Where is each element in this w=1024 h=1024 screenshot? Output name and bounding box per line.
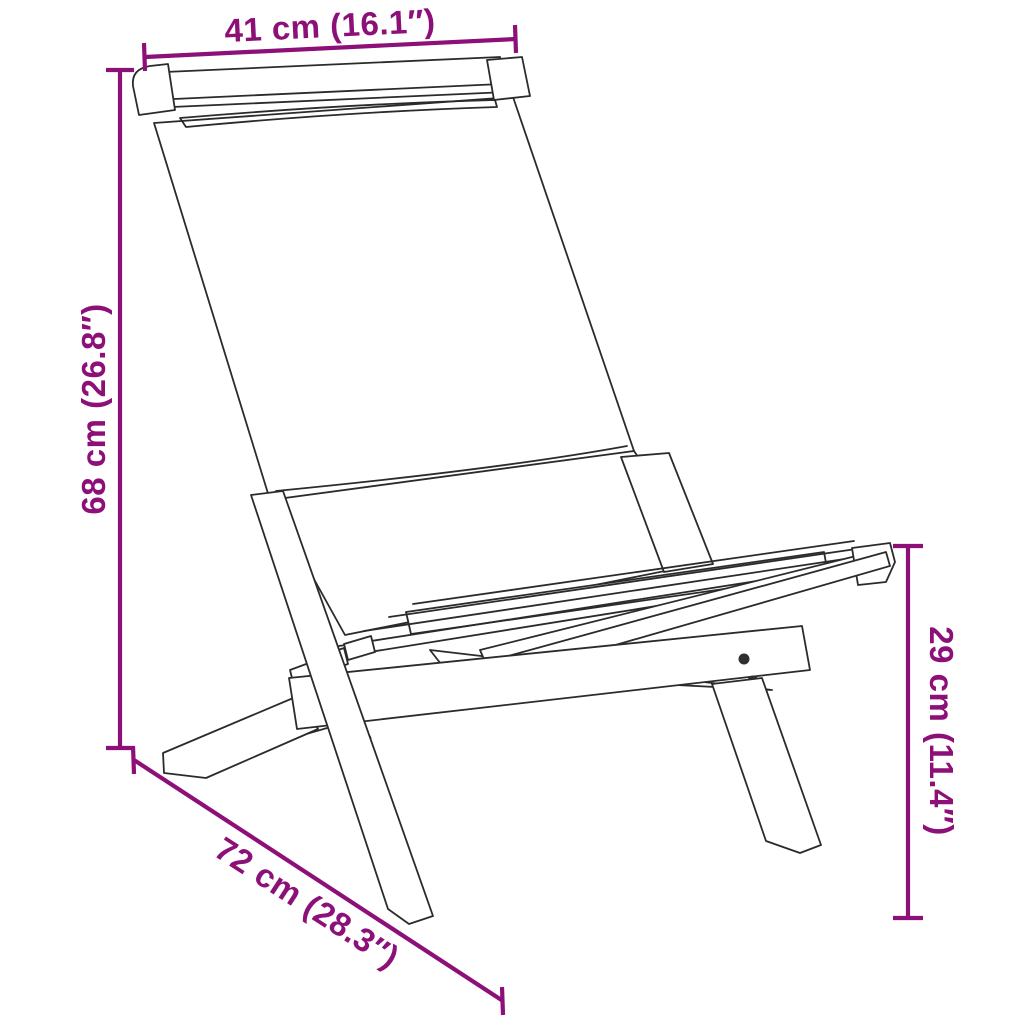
backrest-top-rail <box>165 57 507 107</box>
dimension-label-seat-height: 29 cm (11.4″) <box>922 626 960 835</box>
top-rail-left-cap <box>133 64 175 115</box>
dimension-label-height: 68 cm (26.8″) <box>75 303 113 514</box>
chair <box>133 57 895 924</box>
dimension-diagram: 41 cm (16.1″) 68 cm (26.8″) 29 cm (11.4″… <box>0 0 1024 1024</box>
backrest-fabric <box>154 97 634 500</box>
dimension-right-seat-height <box>893 546 923 918</box>
dimension-bottom-depth <box>133 746 503 1015</box>
top-rail-right-post <box>487 57 530 100</box>
chair-line-drawing <box>0 0 1024 1024</box>
right-leg <box>712 678 821 853</box>
